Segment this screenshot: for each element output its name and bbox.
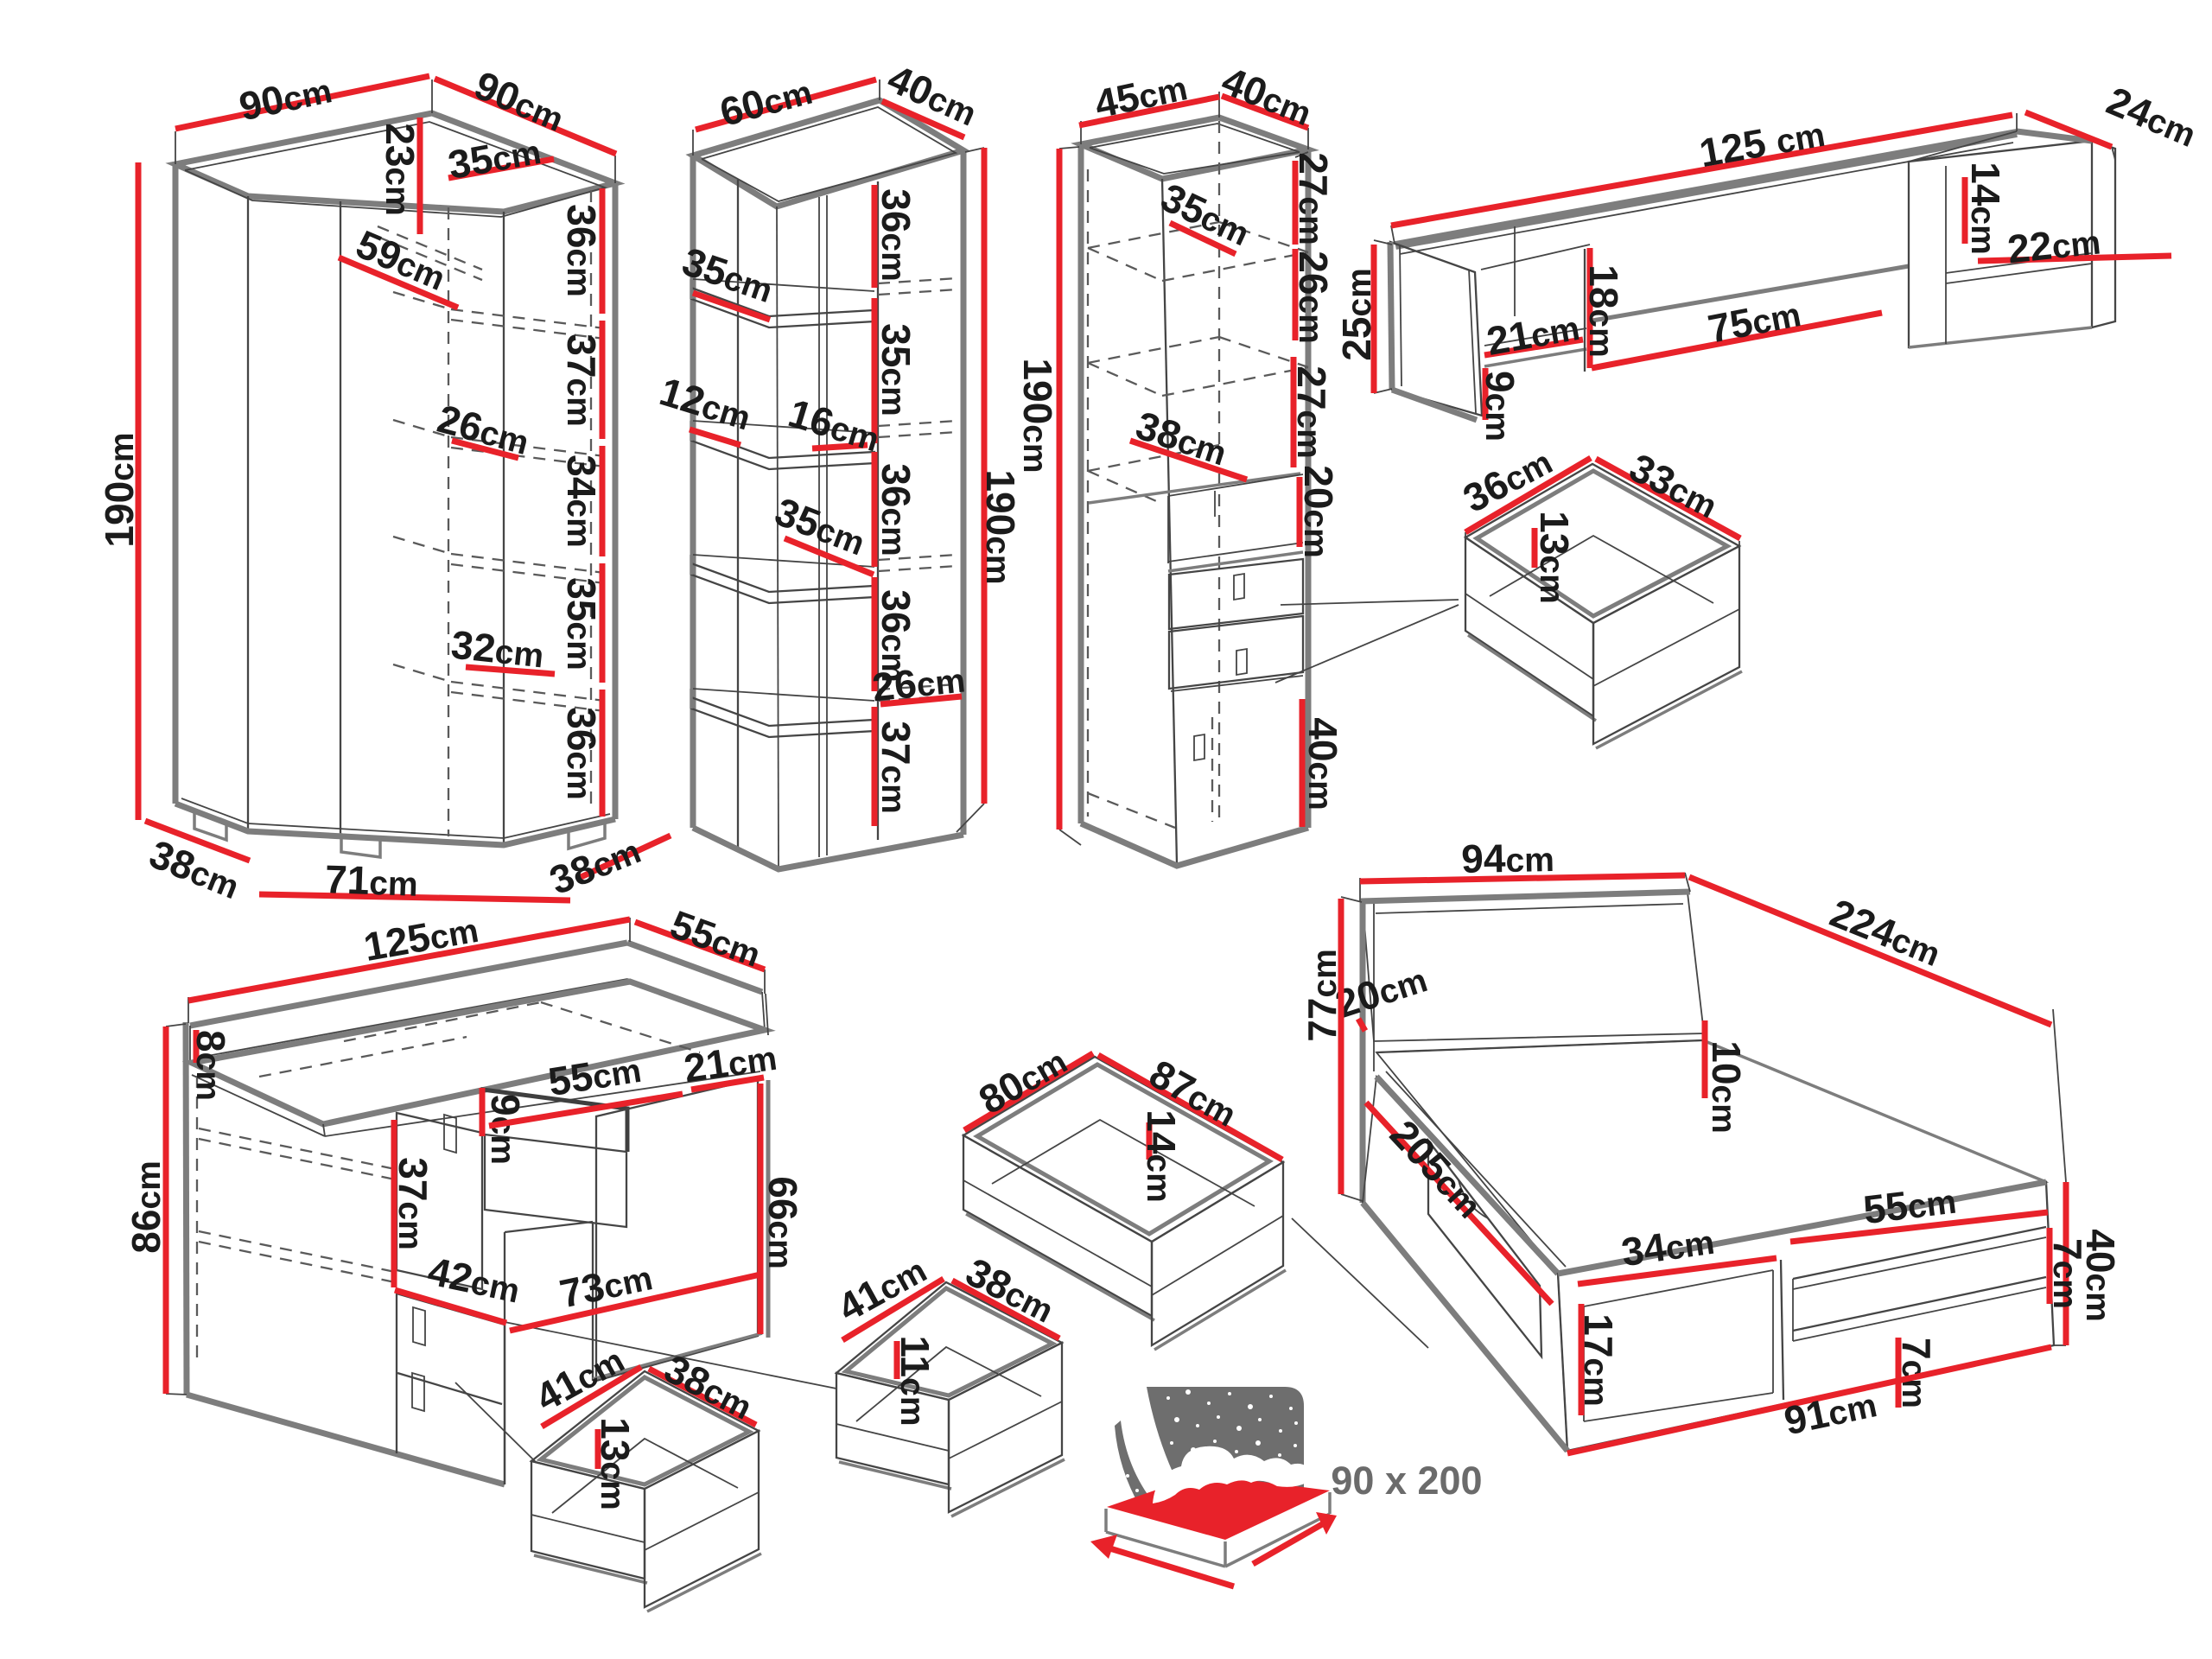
svg-text:18cm: 18cm xyxy=(1581,264,1626,358)
svg-text:20cm: 20cm xyxy=(1296,465,1341,558)
svg-text:7cm: 7cm xyxy=(2045,1238,2090,1309)
svg-text:190cm: 190cm xyxy=(97,432,142,547)
svg-text:94cm: 94cm xyxy=(1461,835,1554,881)
svg-text:34cm: 34cm xyxy=(559,454,604,548)
svg-text:190cm: 190cm xyxy=(1015,358,1060,473)
svg-text:8cm: 8cm xyxy=(188,1030,233,1101)
svg-text:37cm: 37cm xyxy=(874,721,918,814)
svg-text:190cm: 190cm xyxy=(978,469,1023,584)
svg-text:90 x 200: 90 x 200 xyxy=(1331,1459,1482,1503)
svg-text:77cm: 77cm xyxy=(1300,949,1344,1042)
svg-text:11cm: 11cm xyxy=(893,1335,938,1426)
svg-text:36cm: 36cm xyxy=(559,204,604,297)
svg-text:86cm: 86cm xyxy=(124,1160,168,1254)
svg-text:27cm: 27cm xyxy=(1289,365,1334,459)
svg-text:66cm: 66cm xyxy=(760,1176,805,1269)
svg-text:17cm: 17cm xyxy=(1576,1313,1621,1407)
svg-text:23cm: 23cm xyxy=(378,123,423,216)
svg-text:36cm: 36cm xyxy=(874,188,918,282)
svg-text:14cm: 14cm xyxy=(1963,162,2008,255)
svg-text:26cm: 26cm xyxy=(1291,251,1336,344)
svg-text:35cm: 35cm xyxy=(874,323,918,416)
svg-text:14cm: 14cm xyxy=(1139,1109,1184,1203)
svg-text:40cm: 40cm xyxy=(1300,717,1345,810)
svg-text:37cm: 37cm xyxy=(391,1157,435,1250)
svg-text:37cm: 37cm xyxy=(559,334,604,427)
svg-text:36cm: 36cm xyxy=(559,707,604,800)
svg-text:35cm: 35cm xyxy=(559,577,604,671)
svg-text:9cm: 9cm xyxy=(483,1094,528,1165)
svg-text:27cm: 27cm xyxy=(1291,152,1336,245)
svg-text:13cm: 13cm xyxy=(593,1417,638,1510)
svg-text:9cm: 9cm xyxy=(1478,371,1522,442)
svg-text:10cm: 10cm xyxy=(1704,1040,1749,1134)
svg-text:25cm: 25cm xyxy=(1334,268,1379,361)
svg-text:13cm: 13cm xyxy=(1532,511,1577,604)
svg-text:36cm: 36cm xyxy=(874,463,918,556)
